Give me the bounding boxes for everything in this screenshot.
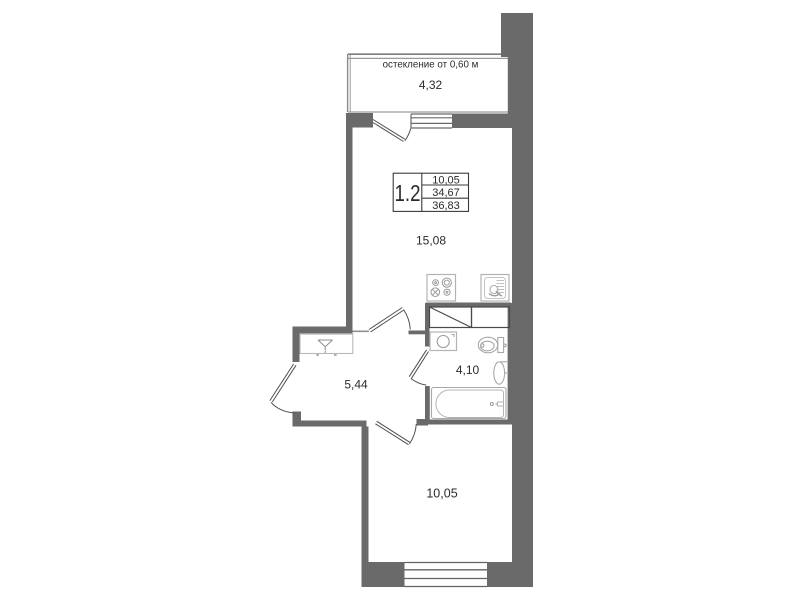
svg-text:34,67: 34,67: [432, 187, 460, 199]
svg-text:36,83: 36,83: [432, 200, 460, 212]
svg-text:10,05: 10,05: [432, 174, 460, 186]
svg-text:4,32: 4,32: [419, 78, 443, 92]
svg-text:5,44: 5,44: [344, 378, 368, 392]
svg-text:15,08: 15,08: [416, 234, 446, 248]
svg-text:10,05: 10,05: [426, 487, 457, 501]
svg-text:4,10: 4,10: [456, 363, 480, 377]
svg-text:1.2: 1.2: [395, 180, 421, 206]
svg-text:остекление от 0,60 м: остекление от 0,60 м: [383, 60, 479, 71]
